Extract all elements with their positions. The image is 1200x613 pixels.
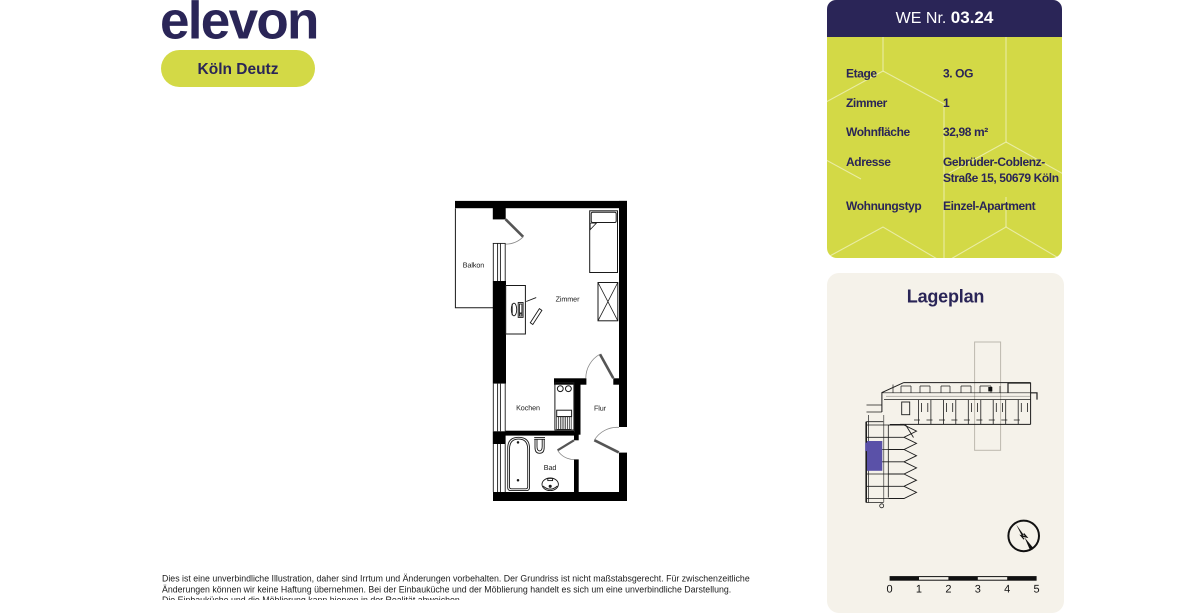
svg-text:4: 4: [1004, 584, 1010, 596]
svg-text:Lageplan: Lageplan: [907, 287, 984, 307]
svg-text:Adresse: Adresse: [846, 155, 891, 169]
svg-text:Köln Deutz: Köln Deutz: [198, 61, 279, 78]
svg-text:1: 1: [916, 583, 922, 595]
svg-text:Wohnfläche: Wohnfläche: [846, 125, 911, 139]
svg-text:Zimmer: Zimmer: [846, 96, 888, 110]
svg-text:Dies ist eine unverbindliche I: Dies ist eine unverbindliche Illustratio…: [162, 574, 750, 584]
svg-text:Bad: Bad: [544, 463, 557, 472]
svg-text:Änderungen können wir keine Ha: Änderungen können wir keine Haftung über…: [162, 584, 731, 594]
svg-text:Flur: Flur: [594, 404, 607, 413]
svg-text:Kochen: Kochen: [516, 403, 540, 412]
svg-text:Einzel-Apartment: Einzel-Apartment: [943, 199, 1036, 213]
svg-text:3. OG: 3. OG: [943, 67, 973, 81]
svg-text:Etage: Etage: [846, 67, 877, 81]
svg-text:Gebrüder-Coblenz-: Gebrüder-Coblenz-: [943, 155, 1045, 169]
svg-text:32,98 m²: 32,98 m²: [943, 125, 988, 139]
svg-text:Balkon: Balkon: [463, 260, 484, 269]
svg-text:5: 5: [1034, 584, 1040, 596]
svg-text:Wohnungstyp: Wohnungstyp: [846, 199, 921, 213]
svg-text:elevon: elevon: [160, 0, 318, 46]
svg-text:Straße 15, 50679 Köln: Straße 15, 50679 Köln: [943, 171, 1059, 185]
svg-text:Die Einbauküche und die Möblie: Die Einbauküche und die Möblierung kann …: [162, 595, 462, 600]
svg-text:Zimmer: Zimmer: [556, 294, 580, 303]
svg-text:WE Nr. 03.24: WE Nr. 03.24: [896, 8, 994, 27]
svg-text:3: 3: [975, 584, 981, 596]
svg-text:1: 1: [943, 96, 950, 110]
svg-text:0: 0: [887, 583, 893, 595]
svg-text:2: 2: [945, 583, 951, 595]
